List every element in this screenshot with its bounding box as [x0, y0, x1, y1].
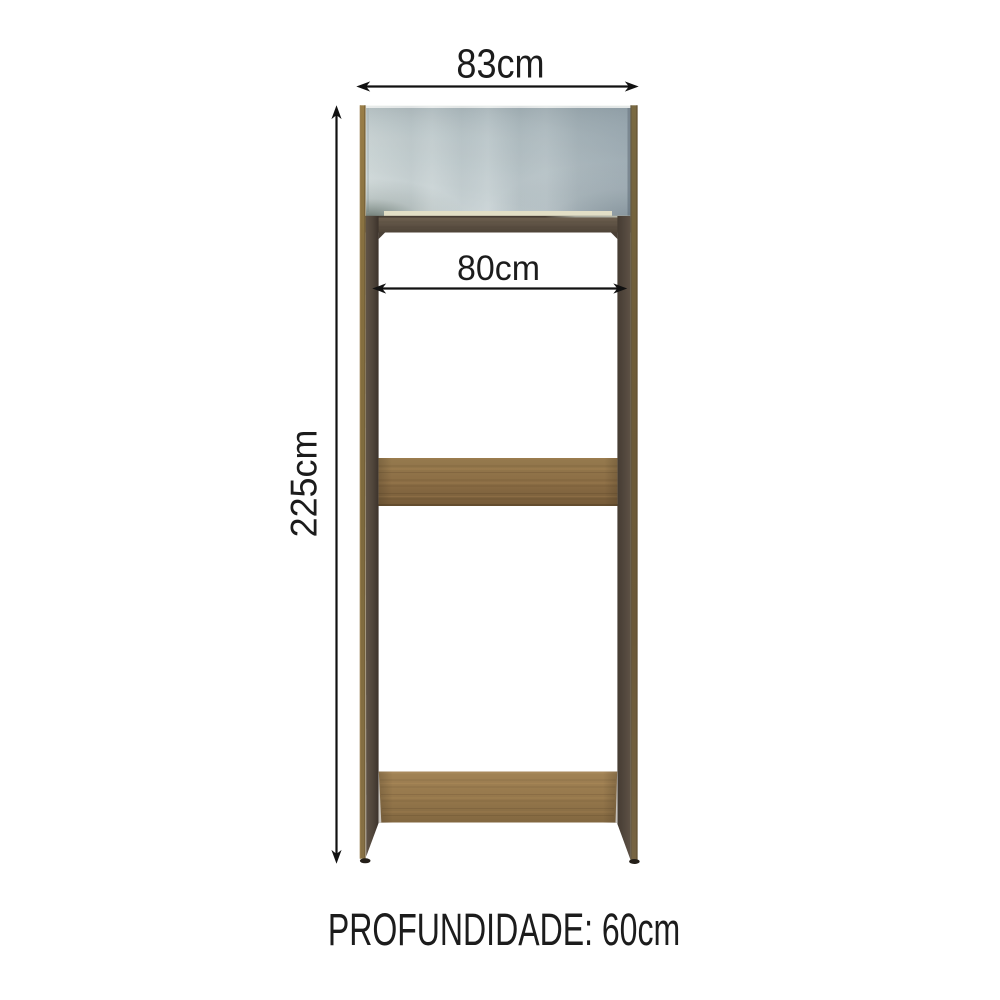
svg-text:80cm: 80cm	[457, 250, 540, 289]
svg-text:PROFUNDIDADE: 60cm: PROFUNDIDADE: 60cm	[328, 906, 680, 956]
svg-text:225cm: 225cm	[283, 430, 325, 538]
svg-text:83cm: 83cm	[456, 41, 544, 87]
